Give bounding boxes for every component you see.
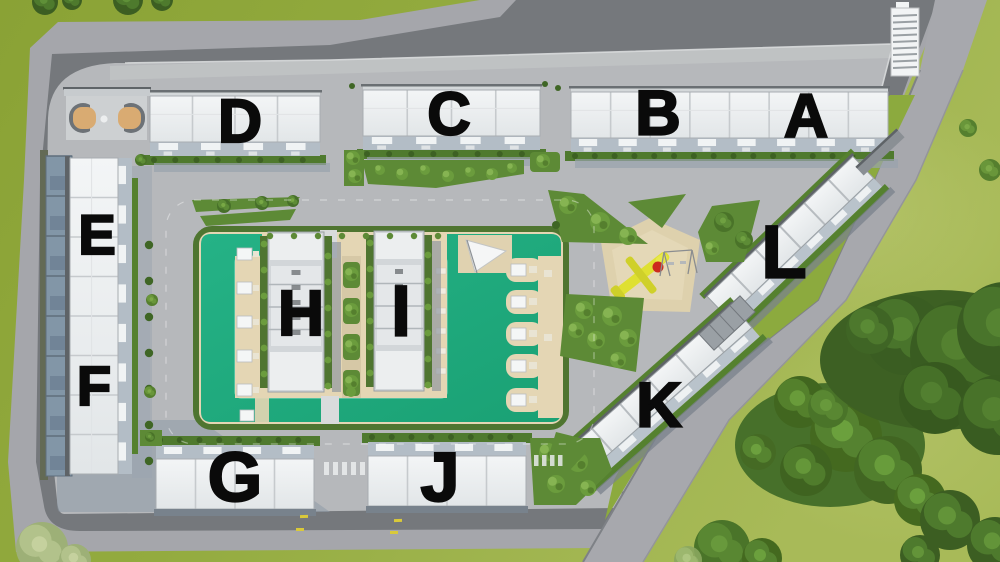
svg-text:A: A	[784, 82, 828, 150]
svg-text:H: H	[278, 277, 324, 349]
svg-text:D: D	[218, 87, 262, 155]
svg-text:J: J	[421, 438, 460, 516]
svg-text:B: B	[635, 79, 681, 149]
svg-text:G: G	[208, 438, 262, 516]
svg-text:K: K	[636, 371, 682, 441]
svg-text:E: E	[78, 203, 115, 266]
svg-text:L: L	[761, 211, 806, 294]
svg-text:F: F	[77, 354, 111, 417]
svg-text:I: I	[391, 273, 411, 352]
svg-text:C: C	[427, 81, 470, 148]
